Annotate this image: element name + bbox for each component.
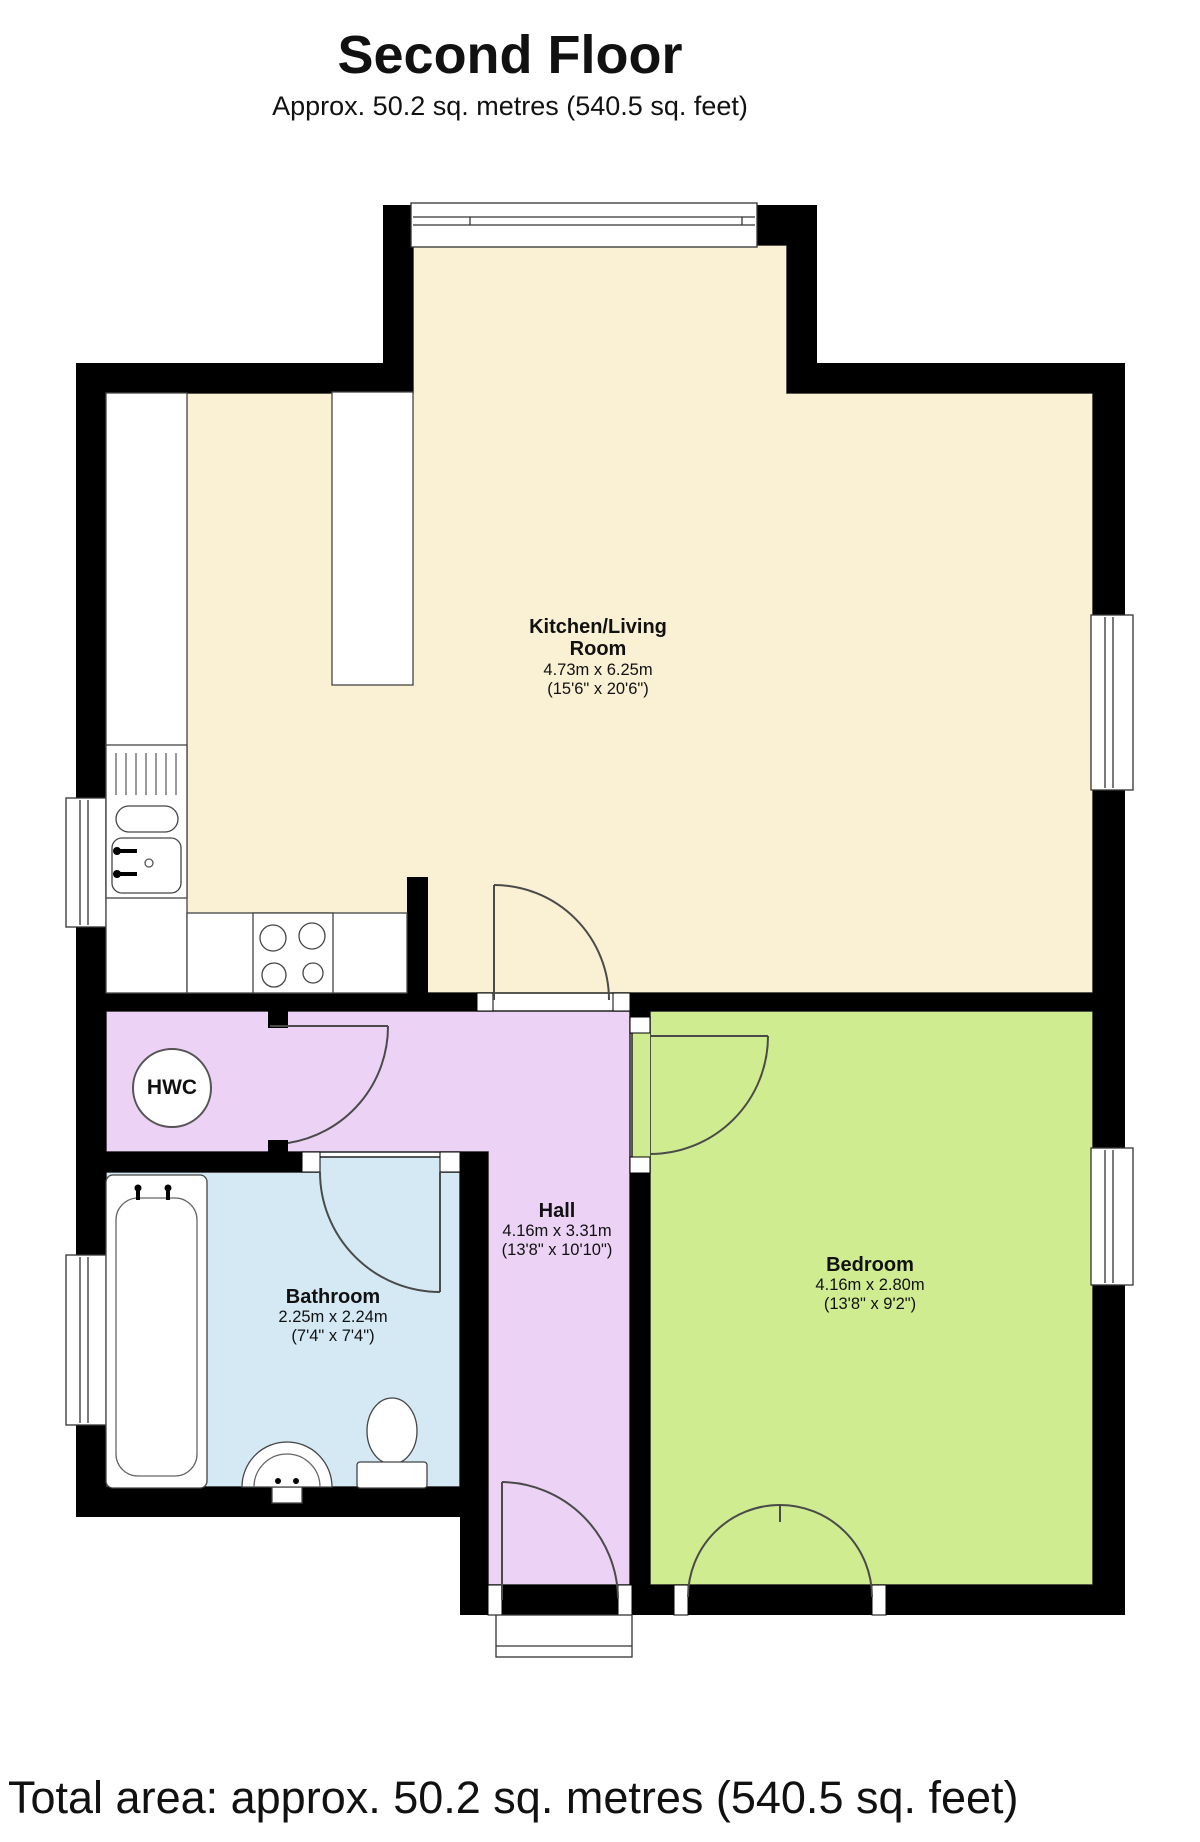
hob — [253, 913, 333, 993]
room-dim-imperial: (15'6" x 20'6") — [514, 680, 682, 699]
page-subtitle: Approx. 50.2 sq. metres (540.5 sq. feet) — [0, 91, 1020, 122]
room-dim-imperial: (13'8" x 9'2") — [815, 1295, 924, 1314]
bathroom-label: Bathroom 2.25m x 2.24m (7'4" x 7'4") — [278, 1286, 387, 1346]
page-title: Second Floor — [0, 26, 1020, 85]
bedroom-doorway-floor — [632, 1033, 650, 1157]
room-dim-imperial: (7'4" x 7'4") — [278, 1327, 387, 1346]
bathroom-left-window — [66, 1255, 106, 1425]
bedroom-right-window — [1091, 1148, 1133, 1285]
entry-threshold — [496, 1615, 632, 1657]
room-dim-metric: 4.16m x 2.80m — [815, 1276, 924, 1295]
room-dim-metric: 4.73m x 6.25m — [514, 661, 682, 680]
plan-header: Second Floor Approx. 50.2 sq. metres (54… — [0, 26, 1020, 122]
room-dim-imperial: (13'8" x 10'10") — [502, 1241, 613, 1260]
sink-unit — [106, 745, 187, 898]
total-area-text: Total area: approx. 50.2 sq. metres (540… — [8, 1772, 1019, 1824]
kitchen-living-label: Kitchen/Living Room 4.73m x 6.25m (15'6"… — [514, 616, 682, 699]
floor-plan-page: Second Floor Approx. 50.2 sq. metres (54… — [0, 0, 1200, 1842]
room-dim-metric: 2.25m x 2.24m — [278, 1308, 387, 1327]
bathtub — [106, 1175, 207, 1488]
room-dim-metric: 4.16m x 3.31m — [502, 1222, 613, 1241]
room-name: Kitchen/Living Room — [514, 616, 682, 661]
bedroom-label: Bedroom 4.16m x 2.80m (13'8" x 9'2") — [815, 1254, 924, 1314]
kitchen-left-window — [66, 798, 106, 927]
room-name: Bathroom — [278, 1286, 387, 1308]
floor-plan-drawing — [0, 0, 1200, 1842]
worktop-left — [106, 393, 187, 993]
kitchen-right-window — [1091, 615, 1133, 790]
room-name: Bedroom — [815, 1254, 924, 1276]
room-name: Hall — [502, 1200, 613, 1222]
hwc-cupboard: HWC — [132, 1048, 212, 1128]
tall-unit — [332, 392, 413, 685]
hall-label: Hall 4.16m x 3.31m (13'8" x 10'10") — [502, 1200, 613, 1260]
kitchen-top-window — [411, 203, 757, 247]
bathroom-doorway-floor — [320, 1157, 440, 1173]
